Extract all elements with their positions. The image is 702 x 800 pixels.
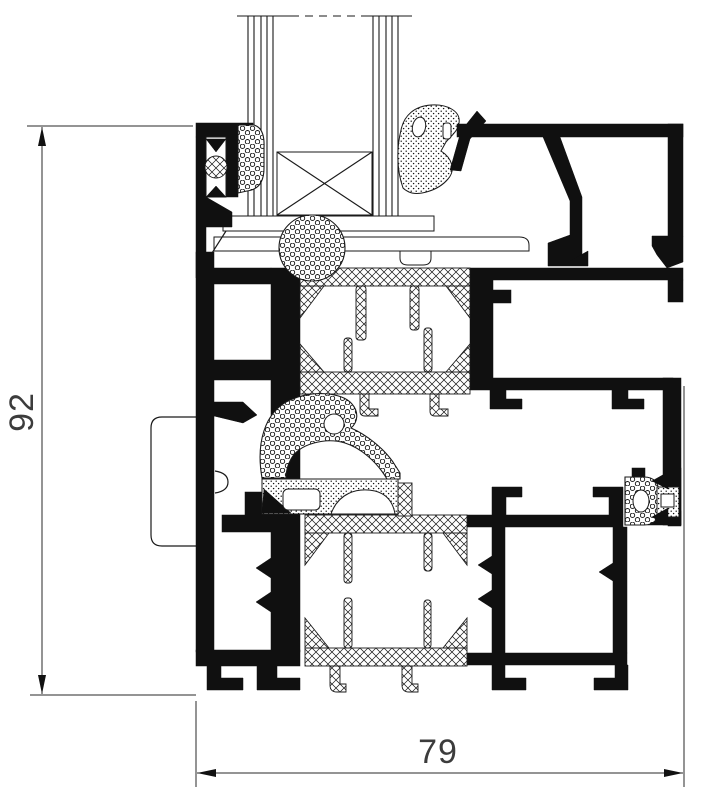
- center-gasket: [260, 394, 400, 514]
- dimension-width-label: 79: [418, 733, 458, 771]
- glass-spacer: [277, 152, 372, 215]
- cover-cap-outline: [151, 417, 228, 546]
- dimension-height: 92: [3, 126, 196, 695]
- glazing-gasket-left: [238, 125, 264, 193]
- profile-section-drawing: 92 79: [0, 0, 702, 800]
- frame-profile-right: [467, 378, 681, 690]
- keeper-gasket-right: [625, 468, 681, 526]
- bead-clip-icon: [205, 156, 227, 178]
- glazing-gasket-right: [398, 105, 459, 193]
- glazing-unit: [223, 16, 434, 231]
- dimension-height-label: 92: [3, 392, 41, 432]
- technical-drawing-canvas: 92 79: [0, 0, 702, 800]
- round-gasket: [279, 215, 345, 281]
- sash-profile-top: [457, 124, 683, 380]
